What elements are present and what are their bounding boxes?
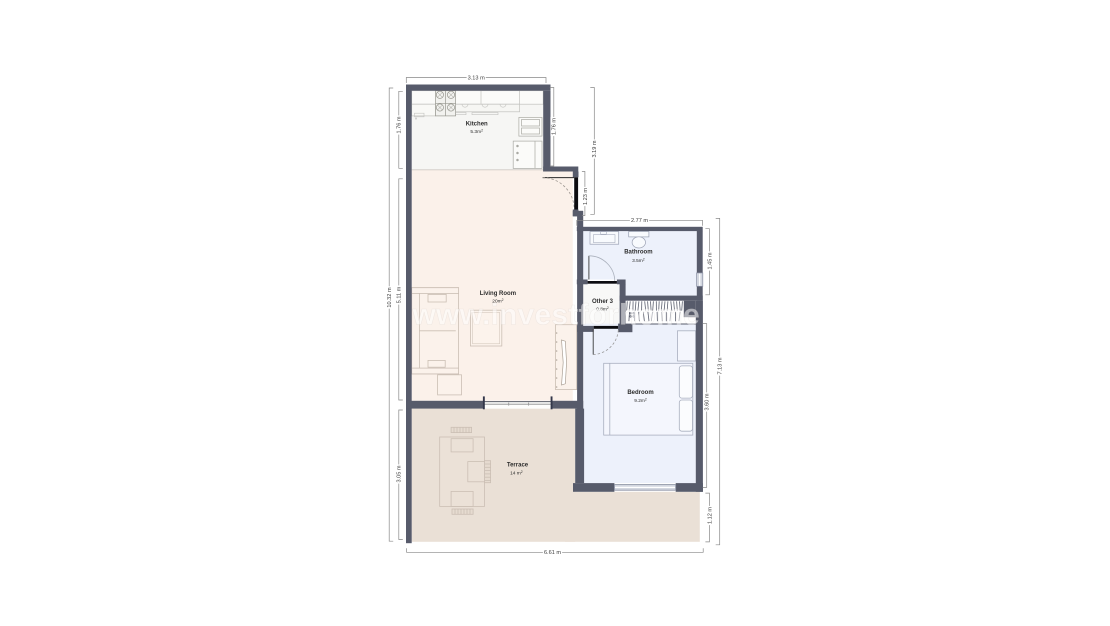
svg-text:Living Room: Living Room xyxy=(480,291,516,297)
svg-text:1.23 m: 1.23 m xyxy=(583,188,589,205)
svg-text:Bedroom: Bedroom xyxy=(627,390,653,396)
svg-text:www.investforhome: www.investforhome xyxy=(412,299,700,332)
svg-text:1.76 m: 1.76 m xyxy=(552,118,558,135)
svg-text:Bathroom: Bathroom xyxy=(624,249,652,255)
svg-text:10.32 m: 10.32 m xyxy=(387,287,393,308)
svg-text:3.13 m: 3.13 m xyxy=(468,75,485,81)
svg-text:1.76 m: 1.76 m xyxy=(397,116,403,133)
svg-text:5.11 m: 5.11 m xyxy=(397,286,403,303)
svg-text:3.60 m: 3.60 m xyxy=(705,393,711,410)
svg-text:6.61 m: 6.61 m xyxy=(544,550,561,556)
svg-text:1.12 m: 1.12 m xyxy=(707,507,713,524)
svg-text:2.77 m: 2.77 m xyxy=(631,218,648,224)
svg-text:Terrace: Terrace xyxy=(507,463,529,469)
svg-text:1.45 m: 1.45 m xyxy=(707,252,713,269)
svg-text:7.13 m: 7.13 m xyxy=(718,357,724,374)
svg-text:Kitchen: Kitchen xyxy=(466,122,488,128)
svg-text:3.19 m: 3.19 m xyxy=(592,140,598,157)
svg-text:3.05 m: 3.05 m xyxy=(397,465,403,482)
